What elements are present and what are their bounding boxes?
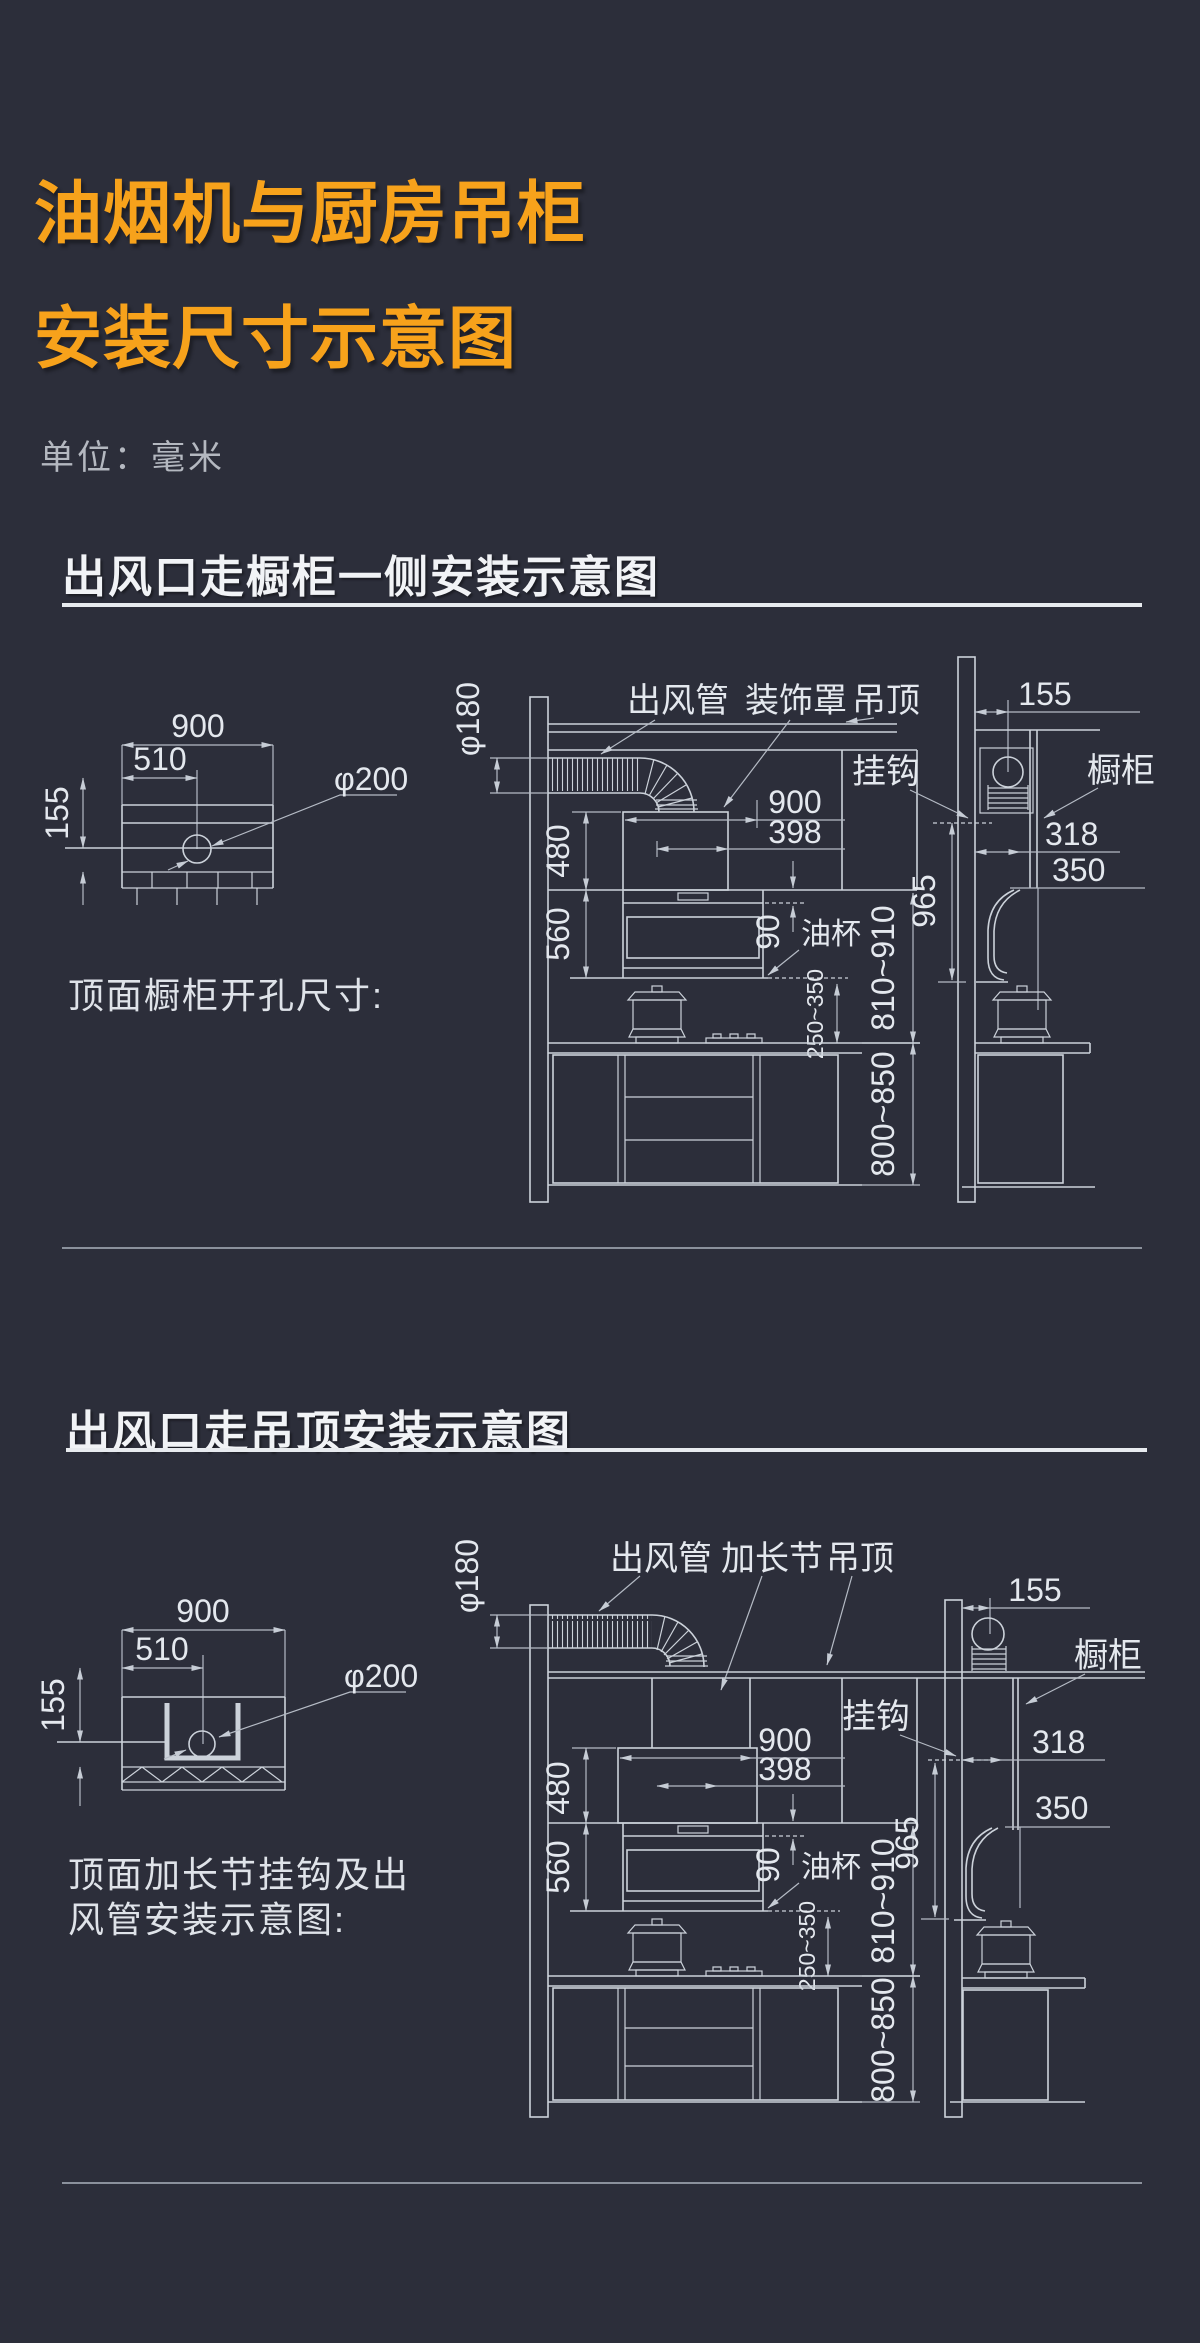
s2-side-pot — [977, 1921, 1035, 1978]
s2-side-base-cabinet — [963, 1990, 1048, 2100]
s1-dim-155: 155 — [1018, 676, 1071, 712]
s2-dim-965: 965 — [889, 1816, 925, 1869]
s2-dim-318: 318 — [1032, 1724, 1085, 1760]
s1-label-duct: 出风管 — [627, 682, 729, 720]
s1-side-wall — [958, 657, 975, 1202]
s2-cooktop-burner — [706, 1967, 762, 1976]
s1-plan-dim-510: 510 — [133, 741, 186, 777]
s1-plan-dim-155: 155 — [39, 786, 75, 839]
s1-front-view: φ180 出风管 装饰罩 吊顶 900 398 480 — [450, 682, 920, 1202]
s2-base-cabinet — [548, 1988, 862, 2102]
s2-plan-hole — [189, 1731, 215, 1757]
s1-plan-dim-hole: φ200 — [334, 761, 408, 797]
s2-dim-hob-clearance: 250~350 — [794, 1901, 820, 1991]
s2-dim-duct-dia: φ180 — [449, 1539, 485, 1613]
s2-plan-dim-510: 510 — [135, 1631, 188, 1667]
s1-dim-hob-clearance: 250~350 — [802, 969, 828, 1059]
s2-plan-dim-155: 155 — [35, 1678, 71, 1731]
s2-label-hook: 挂钩 — [842, 1698, 910, 1736]
s1-plan-view: 900 510 155 φ200 — [39, 708, 408, 905]
section2-underline — [66, 1448, 1147, 1452]
s2-label-cabinet: 橱柜 — [1074, 1637, 1142, 1675]
s2-plan-dim-900: 900 — [176, 1593, 229, 1629]
s2-side-cabinet-front — [1013, 1678, 1018, 1830]
s2-dim-560: 560 — [540, 1840, 576, 1893]
s2-dim-350: 350 — [1035, 1790, 1088, 1826]
s2-plan-caption-line2: 风管安装示意图: — [68, 1897, 410, 1942]
s1-dim-350: 350 — [1052, 852, 1105, 888]
s1-decorative-cover — [623, 812, 728, 890]
s1-dim-hood-range: 810~910 — [865, 905, 901, 1030]
section1-underline — [62, 603, 1142, 607]
s1-plan-caption: 顶面橱柜开孔尺寸: — [68, 973, 384, 1018]
s2-plan-caption: 顶面加长节挂钩及出 风管安装示意图: — [68, 1852, 410, 1942]
section-divider-2 — [62, 2182, 1142, 2184]
s1-exhaust-duct — [548, 758, 698, 812]
s2-side-duct-section — [972, 1618, 1006, 1671]
s1-dim-counter-range: 800~850 — [865, 1051, 901, 1176]
s2-plan-view: 900 510 155 φ200 — [35, 1593, 418, 1806]
s2-side-hood-profile — [954, 1828, 998, 1920]
s1-cooktop-pot — [628, 986, 686, 1043]
s2-label-oil-cup: 油杯 — [801, 1851, 861, 1884]
s1-dim-560: 560 — [540, 907, 576, 960]
s1-side-hood-profile — [976, 890, 1020, 982]
s1-side-pot — [993, 986, 1051, 1043]
s1-side-base-cabinet — [978, 1055, 1063, 1183]
page-title-line1: 油烟机与厨房吊柜 — [34, 158, 586, 257]
s1-label-hook: 挂钩 — [852, 753, 920, 791]
s2-dim-counter-range: 800~850 — [865, 1977, 901, 2102]
s1-base-cabinet — [548, 1055, 862, 1185]
page: 油烟机与厨房吊柜 安装尺寸示意图 单位：毫米 出风口走橱柜一侧安装示意图 — [0, 0, 1200, 2343]
s2-plan-dim-hole: φ200 — [344, 1658, 418, 1694]
s1-ceiling-line — [548, 724, 897, 732]
s1-dim-965: 965 — [906, 874, 942, 927]
s2-exhaust-duct — [548, 1615, 708, 1667]
section1-drawing: 900 510 155 φ200 — [0, 630, 1200, 1260]
s2-plan-caption-line1: 顶面加长节挂钩及出 — [68, 1852, 410, 1897]
s1-label-ceiling: 吊顶 — [852, 682, 920, 720]
section2-drawing: 900 510 155 φ200 — [0, 1490, 1200, 2140]
s2-label-extension: 加长节 — [721, 1540, 823, 1578]
s2-label-duct: 出风管 — [610, 1540, 712, 1578]
s1-label-oil-cup: 油杯 — [801, 918, 861, 951]
unit-label: 单位：毫米 — [40, 430, 225, 479]
s1-label-cover: 装饰罩 — [745, 682, 847, 720]
s1-dim-480: 480 — [540, 824, 576, 877]
section1-heading: 出风口走橱柜一侧安装示意图 — [62, 541, 660, 605]
s2-dim-155: 155 — [1008, 1572, 1061, 1608]
s2-dim-480: 480 — [540, 1761, 576, 1814]
s1-cooktop-burner — [706, 1034, 762, 1043]
s2-label-ceiling: 吊顶 — [826, 1540, 894, 1578]
s2-dim-398: 398 — [758, 1751, 811, 1787]
s1-hood-body — [548, 890, 917, 978]
s2-dim-90: 90 — [750, 1847, 786, 1883]
s1-plan-dim-900: 900 — [171, 708, 224, 744]
section-divider-1 — [62, 1247, 1142, 1249]
s1-dim-398: 398 — [768, 814, 821, 850]
s2-hood-body — [548, 1823, 917, 1911]
s1-dim-318: 318 — [1045, 816, 1098, 852]
s2-front-view: φ180 出风管 加长节 吊顶 900 398 480 — [449, 1539, 1145, 2117]
page-title-line2: 安装尺寸示意图 — [34, 283, 517, 382]
s1-dim-duct-dia: φ180 — [450, 682, 486, 756]
s1-label-cabinet: 橱柜 — [1087, 752, 1155, 790]
s1-dim-90: 90 — [750, 914, 786, 950]
s2-cooktop-pot — [628, 1919, 686, 1976]
s2-ceiling-line — [548, 1672, 1145, 1678]
